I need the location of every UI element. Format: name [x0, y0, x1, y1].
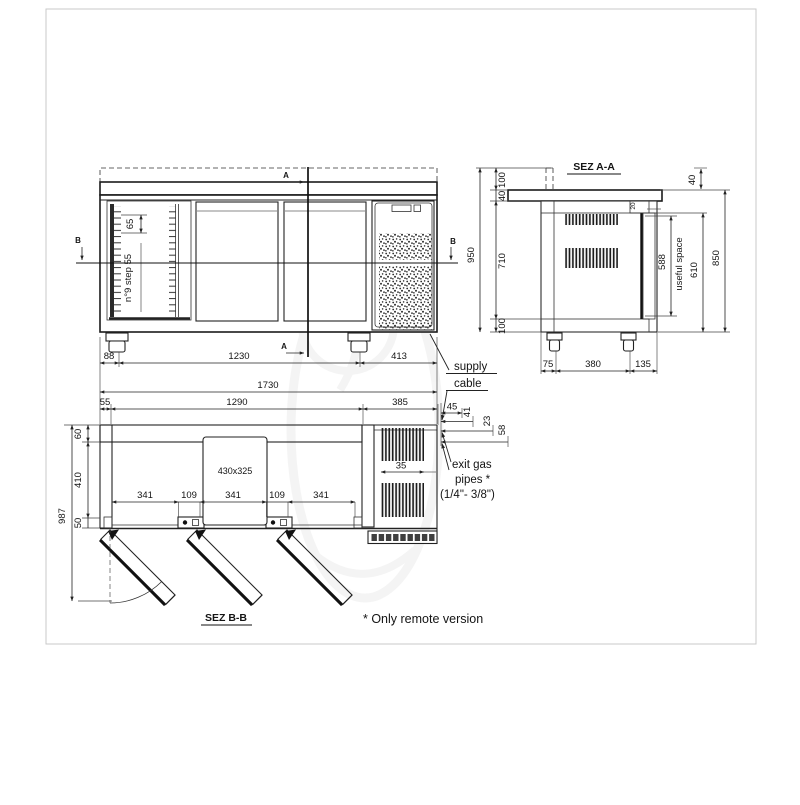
- dim-aa-40-right: 40: [687, 175, 698, 186]
- door3: [284, 202, 366, 321]
- worktop: [100, 182, 437, 195]
- dim-bb-45: 45: [447, 402, 458, 413]
- dim-bb-58: 58: [497, 425, 508, 436]
- bb-open-door-1: [100, 530, 175, 606]
- dim-1230: 1230: [228, 351, 249, 362]
- dim-bb-341a: 341: [137, 490, 153, 501]
- aa-useful-space-label: useful space: [674, 237, 685, 290]
- dim-bb-410: 410: [73, 472, 84, 488]
- bb-left-wall: [100, 425, 112, 528]
- door1-interior: 65 n°9 step 55: [107, 201, 191, 320]
- bb-corner-left: [104, 517, 112, 528]
- section-a-label-bottom: A: [281, 342, 287, 351]
- dim-413: 413: [391, 351, 407, 362]
- dim-bb-109a: 109: [181, 490, 197, 501]
- dim-aa-588: 588: [657, 254, 668, 270]
- dim-bb-341b: 341: [225, 490, 241, 501]
- aa-legs: [547, 333, 636, 351]
- control-panel: [392, 205, 411, 212]
- bb-evaporator: [203, 437, 267, 525]
- dim-aa-610: 610: [689, 262, 700, 278]
- dim-55: 55: [100, 397, 111, 408]
- exit-gas-label-line2: pipes *: [455, 474, 491, 486]
- dim-bb-341c: 341: [313, 490, 329, 501]
- dim-aa-950: 950: [466, 247, 477, 263]
- bb-pipe-dimensions: 45 41 23 58: [438, 402, 508, 448]
- section-b-label-right: B: [450, 237, 456, 246]
- technical-drawing-page: 65 n°9 step 55 A: [0, 0, 800, 800]
- condenser-grille-lower: [379, 266, 432, 330]
- control-switch: [414, 205, 421, 212]
- dim-aa-100-top: 100: [497, 172, 508, 188]
- section-a-label-top: A: [283, 171, 289, 180]
- motor-compartment: [372, 201, 434, 330]
- aa-worktop: [508, 190, 662, 201]
- bb-divider-wall: [362, 425, 374, 527]
- refrigerated-counter-drawing: 65 n°9 step 55 A: [0, 0, 800, 800]
- section-b-label-left: B: [75, 236, 81, 245]
- dim-1290: 1290: [226, 397, 247, 408]
- bb-open-door-2: [187, 530, 262, 606]
- exit-gas-label-line1: exit gas: [452, 459, 492, 471]
- supply-cable-label-line1: supply: [454, 361, 487, 373]
- section-aa-view: SEZ A-A 20: [466, 161, 730, 374]
- sez-aa-title: SEZ A-A: [573, 161, 615, 173]
- aa-shelf-lower: [565, 248, 618, 268]
- dim-aa-40: 40: [497, 191, 508, 202]
- worktop-dashed-outline: [100, 168, 437, 183]
- exit-gas-label-line3: (1/4"- 3/8"): [440, 489, 495, 501]
- bb-corner-right: [354, 517, 362, 528]
- shelf-note: n°9 step 55: [123, 254, 134, 302]
- sez-bb-title: SEZ B-B: [205, 612, 247, 624]
- footnote-remote-version: * Only remote version: [363, 612, 483, 626]
- dim-bb-35: 35: [396, 461, 407, 472]
- dim-aa-380: 380: [585, 359, 601, 370]
- dim-88: 88: [104, 351, 115, 362]
- door2: [196, 202, 278, 321]
- bb-grille-lower: [381, 483, 424, 517]
- dim-bb-60: 60: [73, 429, 84, 440]
- legs: [106, 333, 370, 352]
- dim-shelf-pitch: 65: [125, 219, 136, 230]
- dim-door-gap-20: 20: [630, 202, 637, 210]
- bb-left-dimensions: 60 410 50 987: [57, 425, 112, 601]
- dim-bb-987: 987: [57, 508, 68, 524]
- dim-bb-41: 41: [462, 407, 473, 418]
- condenser-grille-upper: [379, 233, 432, 260]
- shelf-rail-left-ticks: [114, 206, 121, 314]
- dim-bb-23: 23: [482, 416, 493, 427]
- dim-1730: 1730: [257, 380, 278, 391]
- bb-door-sill-1: [178, 517, 204, 528]
- annotations: supply cable exit gas pipes * (1/4"- 3/8…: [363, 334, 497, 626]
- shelf-rail-right-ticks: [169, 206, 176, 314]
- dim-aa-850: 850: [711, 250, 722, 266]
- shelf-rail-left: [110, 204, 114, 317]
- aa-shelf-upper: [565, 214, 618, 225]
- dim-aa-100-bottom: 100: [497, 318, 508, 334]
- supply-cable-label-line2: cable: [454, 378, 482, 390]
- dim-bb-50: 50: [73, 518, 84, 529]
- bb-vent-strip: [368, 531, 437, 544]
- dim-aa-135: 135: [635, 359, 651, 370]
- dim-bb-109b: 109: [269, 490, 285, 501]
- dim-385: 385: [392, 397, 408, 408]
- dim-aa-710: 710: [497, 253, 508, 269]
- bb-door-sill-2: [266, 517, 292, 528]
- front-view: 65 n°9 step 55 A: [75, 167, 458, 424]
- bb-evaporator-size: 430x325: [218, 466, 253, 476]
- bb-grille-upper: [381, 428, 424, 461]
- dim-aa-75: 75: [543, 359, 554, 370]
